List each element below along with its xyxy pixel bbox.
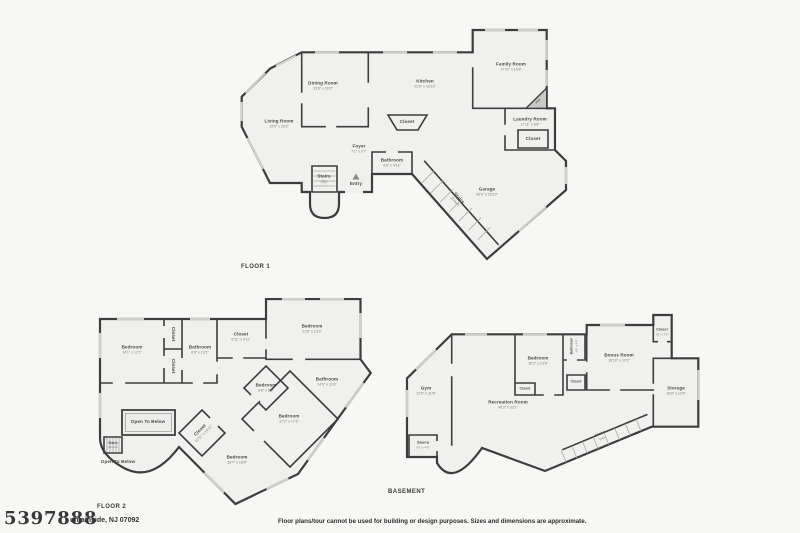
floorplan-page: Living Room 13'5" x 20'2" Dining Room 13… bbox=[0, 0, 800, 533]
floor2-outline bbox=[100, 299, 371, 504]
basement-caption: BASEMENT bbox=[388, 489, 425, 495]
floor2-caption: FLOOR 2 bbox=[97, 504, 126, 510]
floor2-plan: Bedroom 14'1" x 12'1" Closet Closet Bath… bbox=[92, 298, 372, 513]
floor1-plan: Living Room 13'5" x 20'2" Dining Room 13… bbox=[235, 22, 575, 272]
disclaimer-text: Floor plans/tour cannot be used for buil… bbox=[278, 518, 586, 525]
property-address-fragment: untainside, NJ 07092 bbox=[70, 517, 139, 524]
floor1-drawing bbox=[235, 22, 575, 272]
floor2-drawing bbox=[92, 298, 372, 513]
basement-outline bbox=[407, 315, 698, 473]
basement-drawing bbox=[395, 305, 700, 505]
floor1-caption: FLOOR 1 bbox=[241, 264, 270, 270]
basement-plan: Gym 12'6" x 11'6" Recreation Room 45'3" … bbox=[395, 305, 700, 505]
